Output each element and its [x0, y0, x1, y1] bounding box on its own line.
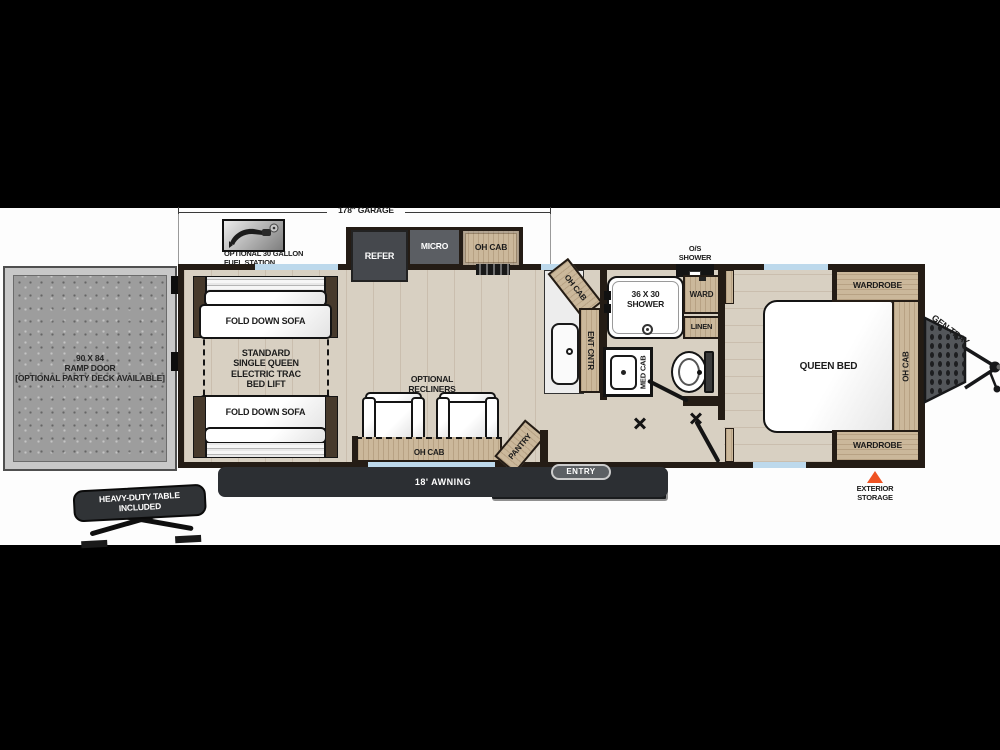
linen-label: LINEN	[691, 323, 713, 332]
recliner-left-seat	[373, 401, 414, 440]
dimension-guide-right	[550, 214, 551, 264]
wardrobe-top-label: WARDROBE	[853, 281, 902, 291]
entertainment-center: ENT CNTR	[579, 308, 601, 393]
recliner-right-arm-right	[485, 397, 499, 442]
queen-bed: QUEEN BED	[763, 300, 894, 433]
bed-lift-label: STANDARD SINGLE QUEEN ELECTRIC TRAC BED …	[203, 348, 329, 389]
queen-bed-label: QUEEN BED	[800, 361, 858, 373]
ward-label: WARD	[690, 290, 714, 299]
overhead-cabinet-bedroom-label: OH CAB	[901, 352, 910, 382]
recliner-right-seat	[447, 401, 488, 440]
bedroom-cabinet-bottom-left	[725, 428, 734, 462]
ramp-door-label: 90 X 84 RAMP DOOR [OPTIONAL PARTY DECK A…	[11, 354, 169, 383]
garage-dimension-label: 178" GARAGE	[327, 206, 405, 216]
bathroom-door-hinge-icon	[633, 416, 647, 430]
fold-down-sofa-top: FOLD DOWN SOFA	[199, 304, 332, 339]
overhead-cabinet-kitchen-label: OH CAB	[475, 243, 507, 253]
recliner-left-arm-right	[411, 397, 425, 442]
overhead-cabinet-recliners: OH CAB	[356, 437, 502, 462]
sofa-bottom-arm-right	[325, 396, 338, 458]
table-label: HEAVY-DUTY TABLE INCLUDED	[99, 491, 181, 515]
overhead-cabinet-recliners-label: OH CAB	[358, 448, 500, 457]
fuel-pump-icon	[222, 219, 285, 252]
wardrobe-top: WARDROBE	[832, 270, 920, 302]
toilet-flush-dot	[697, 370, 702, 375]
drain-dot	[646, 328, 649, 331]
drain-icon	[642, 324, 653, 335]
microwave-label: MICRO	[421, 242, 448, 252]
overhead-cabinet-counter-label: OH CAB	[562, 273, 588, 303]
vanity-faucet-dot	[621, 370, 626, 375]
fuel-nozzle-graphic	[224, 221, 283, 250]
range-cooktop	[472, 261, 514, 278]
shower-head-icon-2	[604, 304, 611, 313]
exterior-storage-label: EXTERIOR STORAGE	[839, 485, 911, 502]
heavy-duty-table: HEAVY-DUTY TABLE INCLUDED	[72, 483, 211, 552]
window-bedroom-bottom	[753, 462, 806, 468]
outside-shower-label: O/S SHOWER	[662, 245, 728, 262]
bedroom-door-hinge-icon	[689, 411, 703, 425]
ramp-door-frame: 90 X 84 RAMP DOOR [OPTIONAL PARTY DECK A…	[3, 266, 177, 471]
ramp-hinge-top	[171, 276, 178, 294]
window-garage-top	[255, 264, 338, 270]
overhead-cabinet-bedroom: OH CAB	[892, 299, 920, 435]
shower-head-icon-1	[604, 291, 611, 300]
dimension-line-left	[179, 212, 327, 213]
window-bedroom-top	[764, 264, 828, 270]
recliner-left-arm-left	[362, 397, 376, 442]
refrigerator-label: REFER	[365, 251, 395, 261]
bedroom-cabinet-top-left	[725, 270, 734, 304]
fold-down-sofa-top-label: FOLD DOWN SOFA	[226, 316, 306, 326]
refrigerator: REFER	[351, 230, 408, 282]
wardrobe-bottom: WARDROBE	[832, 430, 920, 462]
wall-bedroom	[718, 264, 725, 420]
wardrobe-bottom-label: WARDROBE	[853, 441, 902, 451]
floorplan-canvas: 178" GARAGE OPTIONAL 30 GALLON FUEL STAT…	[0, 0, 1000, 750]
kitchen-sink	[551, 323, 579, 385]
toilet-tank	[704, 351, 714, 393]
shower-stall: 36 X 30 SHOWER	[607, 276, 684, 339]
entry-label: ENTRY	[566, 467, 595, 476]
ramp-hinge-bottom	[171, 352, 178, 371]
sofa-bottom-backrest	[206, 442, 325, 458]
recliner-right-arm-left	[436, 397, 450, 442]
sofa-bottom-arm-left	[193, 396, 206, 458]
ward-pull-icon	[699, 277, 706, 281]
medicine-cabinet-vanity: MED CAB	[603, 347, 653, 397]
entertainment-center-label: ENT CNTR	[585, 331, 594, 370]
table-foot-left	[81, 540, 107, 548]
exterior-storage-arrow-icon	[867, 471, 883, 483]
microwave: MICRO	[410, 230, 459, 264]
linen-cabinet: LINEN	[683, 316, 720, 339]
entry-door-tab: ENTRY	[551, 464, 611, 480]
faucet-icon	[566, 348, 573, 355]
dimension-line-right	[405, 212, 551, 213]
table-top: HEAVY-DUTY TABLE INCLUDED	[72, 484, 206, 523]
shower-label: 36 X 30 SHOWER	[609, 290, 682, 310]
med-cab-label: MED CAB	[639, 355, 648, 389]
fold-down-sofa-bottom: FOLD DOWN SOFA	[199, 395, 332, 430]
fold-down-sofa-bottom-label: FOLD DOWN SOFA	[226, 407, 306, 417]
table-foot-right	[175, 535, 201, 543]
wall-stub-pantry	[540, 430, 548, 463]
toilet	[671, 351, 707, 393]
med-cab-label-holder: MED CAB	[637, 350, 650, 394]
dimension-guide-left	[178, 214, 179, 264]
